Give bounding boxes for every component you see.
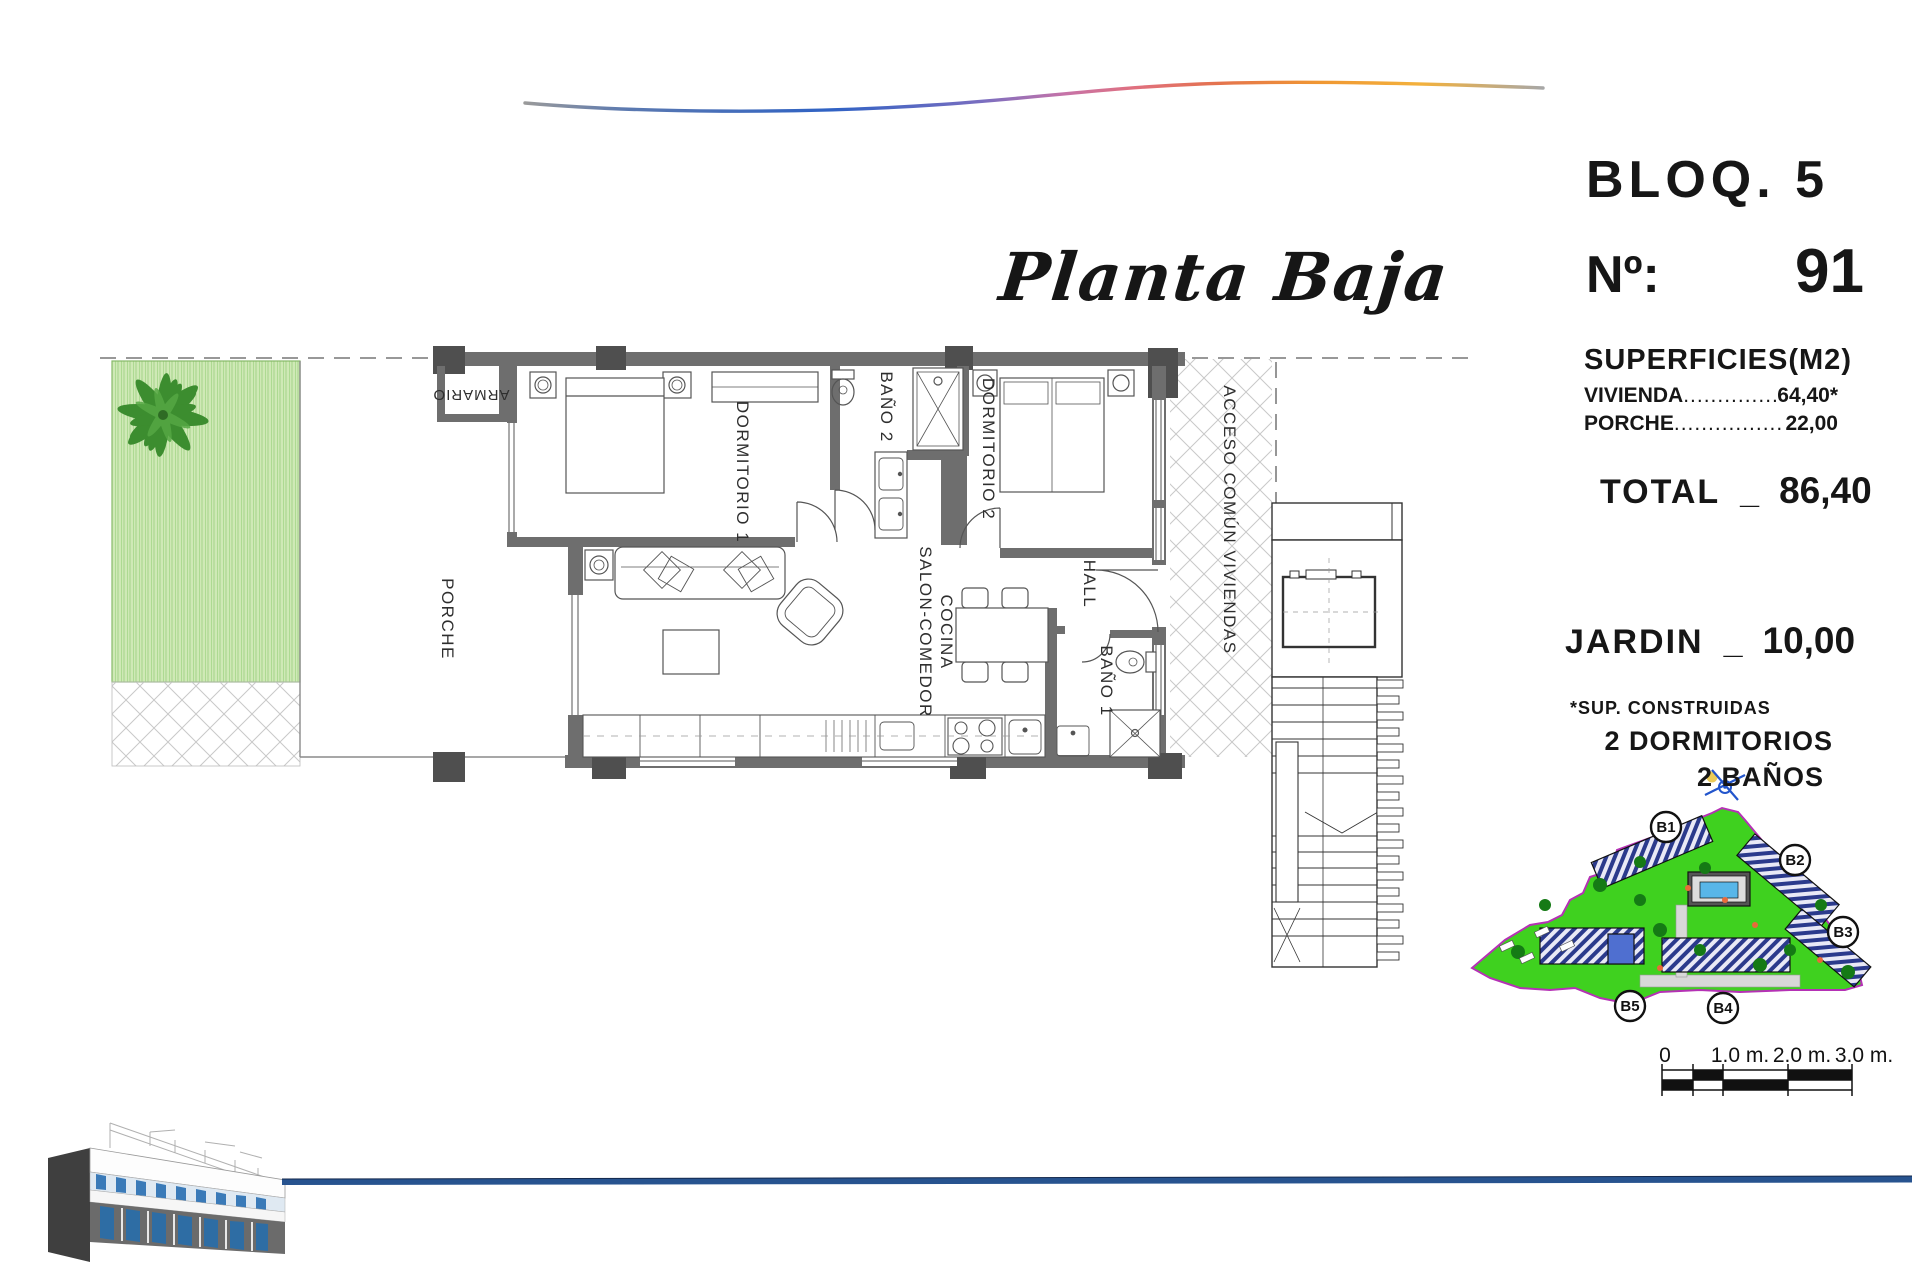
bedroom1-furniture xyxy=(530,372,818,493)
total-label: TOTAL xyxy=(1600,473,1720,512)
svg-text:B4: B4 xyxy=(1713,1000,1733,1017)
label-porche: PORCHE xyxy=(438,578,457,660)
svg-text:B3: B3 xyxy=(1833,924,1852,941)
kitchen-counter xyxy=(583,715,1045,757)
label-hall: HALL xyxy=(1080,560,1099,609)
surface-label: VIVIENDA xyxy=(1584,384,1683,408)
scale-tick-2: 2.0 m. xyxy=(1773,1044,1831,1067)
block-heading: BLOQ. 5 xyxy=(1586,150,1829,210)
label-acceso: ACCESO COMÚN VIVIENDAS xyxy=(1220,385,1239,654)
footnote: *SUP. CONSTRUIDAS xyxy=(1570,698,1771,719)
svg-text:B5: B5 xyxy=(1620,998,1639,1015)
gradient-swoosh xyxy=(525,82,1543,111)
total-separator: _ xyxy=(1740,473,1759,512)
scale-tick-3: 3.0 m. xyxy=(1835,1044,1893,1067)
unit-number-value: 91 xyxy=(1795,236,1864,307)
stair-elevator-core xyxy=(1272,503,1403,967)
surface-row-vivienda: VIVIENDA ...............................… xyxy=(1584,384,1838,408)
feature-bathrooms: 2 BAÑOS xyxy=(1697,762,1824,793)
site-map: B1 B2 B3 B4 B5 xyxy=(1472,808,1871,1023)
blue-divider-line xyxy=(282,1176,1912,1185)
porch-edges xyxy=(300,361,565,757)
dining-furniture xyxy=(956,588,1048,682)
garden xyxy=(112,361,300,766)
surface-value: 22,00 xyxy=(1785,412,1838,436)
plan-sheet: ARMARIO PORCHE DORMITORIO 1 BAÑO 2 DORMI… xyxy=(0,0,1920,1280)
unit-number-label: Nº: xyxy=(1586,245,1660,305)
label-salon-line1: SALON-COMEDOR xyxy=(916,546,935,718)
label-dormitorio2: DORMITORIO 2 xyxy=(979,378,998,520)
surface-value: 64,40* xyxy=(1777,384,1838,408)
scale-tick-0: 0 xyxy=(1659,1044,1671,1067)
surface-row-porche: PORCHE .................................… xyxy=(1584,412,1838,436)
surface-label: PORCHE xyxy=(1584,412,1674,436)
marker-b3: B3 xyxy=(1828,917,1858,947)
label-bano2: BAÑO 2 xyxy=(877,371,896,442)
staircase xyxy=(1272,677,1378,967)
unit-number-row: Nº: 91 xyxy=(1586,236,1864,307)
jardin-value: 10,00 xyxy=(1763,620,1856,662)
page-title: Planta Baja xyxy=(996,238,1424,316)
scale-tick-1: 1.0 m. xyxy=(1711,1044,1769,1067)
dotted-leader: ...................................... xyxy=(1674,412,1786,436)
building-render xyxy=(48,1123,285,1262)
dotted-leader: ...................................... xyxy=(1683,384,1777,408)
feature-bedrooms: 2 DORMITORIOS xyxy=(1604,726,1833,757)
marker-b4: B4 xyxy=(1708,993,1738,1023)
marker-b5: B5 xyxy=(1615,991,1645,1021)
label-salon-line2: COCINA xyxy=(937,594,956,669)
total-value: 86,40 xyxy=(1779,470,1872,512)
marker-b2: B2 xyxy=(1780,845,1810,875)
marker-b1: B1 xyxy=(1651,812,1681,842)
surfaces-heading: SUPERFICIES(M2) xyxy=(1584,344,1852,377)
label-bano1: BAÑO 1 xyxy=(1097,645,1116,716)
jardin-label: JARDIN xyxy=(1565,623,1704,662)
scale-bar: 0 1.0 m. 2.0 m. 3.0 m. xyxy=(1659,1044,1893,1096)
svg-text:B1: B1 xyxy=(1656,819,1675,836)
jardin-row: JARDIN _ 10,00 xyxy=(1565,620,1855,662)
total-row: TOTAL _ 86,40 xyxy=(1600,470,1872,512)
label-armario: ARMARIO xyxy=(432,386,509,403)
louver-slats xyxy=(1377,680,1403,960)
jardin-separator: _ xyxy=(1724,623,1743,662)
label-dormitorio1: DORMITORIO 1 xyxy=(733,401,752,543)
svg-text:B2: B2 xyxy=(1785,852,1804,869)
